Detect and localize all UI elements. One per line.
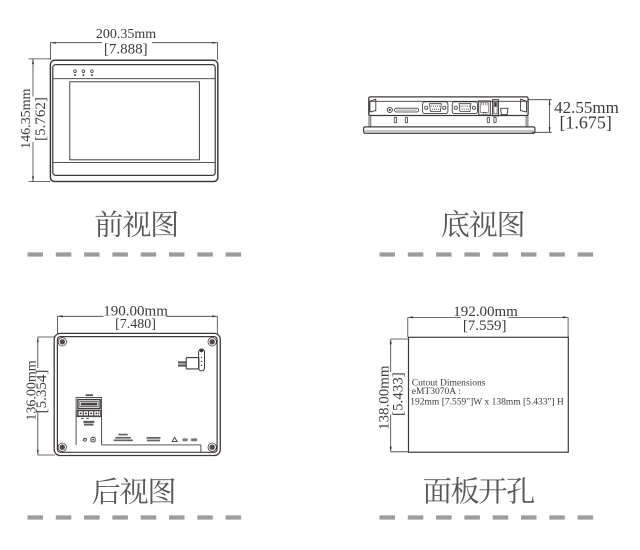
svg-text:[7.888]: [7.888] bbox=[104, 41, 148, 57]
svg-text:192mm [7.559"]W x 138mm [5.433: 192mm [7.559"]W x 138mm [5.433"] H bbox=[410, 397, 564, 407]
svg-text:[5.762]: [5.762] bbox=[33, 97, 49, 141]
svg-text:[5.354]: [5.354] bbox=[34, 370, 50, 414]
svg-text:eMT3070A :: eMT3070A : bbox=[412, 387, 461, 397]
svg-text:[1.675]: [1.675] bbox=[559, 112, 612, 132]
svg-text:[5.433]: [5.433] bbox=[390, 372, 406, 416]
svg-text:200.35mm: 200.35mm bbox=[96, 27, 156, 42]
svg-text:[7.559]: [7.559] bbox=[463, 318, 507, 334]
svg-text:146.35mm: 146.35mm bbox=[19, 88, 34, 148]
svg-text:[7.480]: [7.480] bbox=[115, 317, 156, 332]
